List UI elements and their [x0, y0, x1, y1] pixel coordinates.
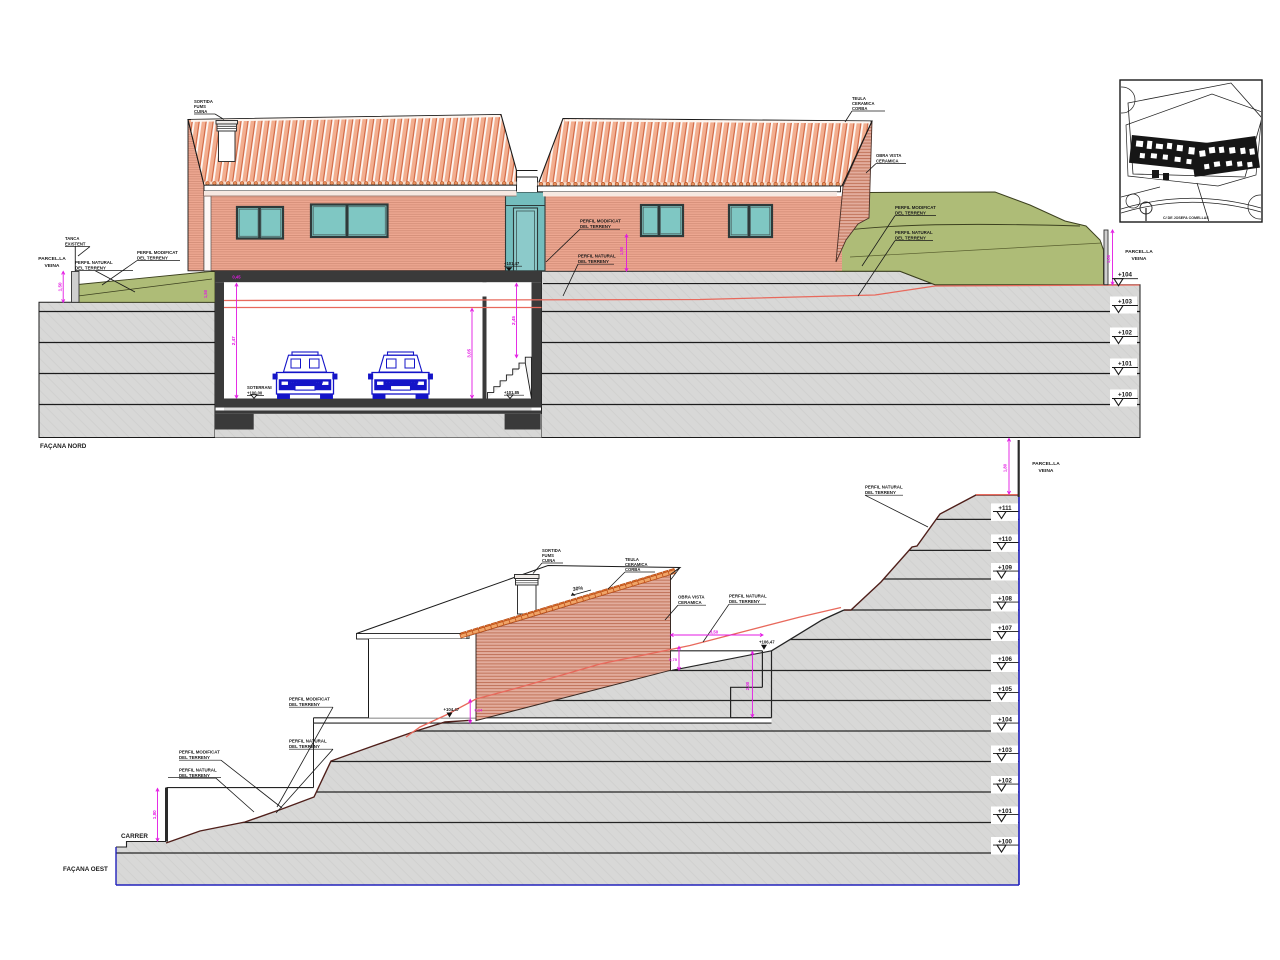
svg-text:+102: +102 [998, 778, 1012, 785]
svg-text:+103: +103 [1118, 299, 1132, 306]
svg-text:DEL TERRENY: DEL TERRENY [75, 266, 106, 271]
svg-text:PARCEL.LA: PARCEL.LA [1032, 461, 1060, 467]
svg-text:DEL TERRENY: DEL TERRENY [289, 744, 320, 749]
svg-text:DEL TERRENY: DEL TERRENY [865, 490, 896, 495]
svg-text:DEL TERRENY: DEL TERRENY [729, 599, 760, 604]
svg-text:+104,47: +104,47 [444, 707, 460, 712]
svg-text:CUINA: CUINA [194, 109, 207, 114]
svg-text:CUINA: CUINA [542, 558, 555, 563]
svg-text:+103: +103 [998, 747, 1012, 754]
svg-text:PERFIL MODIFICAT: PERFIL MODIFICAT [289, 697, 330, 702]
svg-text:VEINA: VEINA [1039, 468, 1054, 474]
svg-text:0,14: 0,14 [475, 708, 484, 713]
svg-text:OBRA VISTA: OBRA VISTA [678, 595, 705, 600]
svg-text:DEL TERRENY: DEL TERRENY [895, 211, 926, 216]
svg-text:PARCEL.LA: PARCEL.LA [1125, 249, 1153, 255]
svg-text:+108: +108 [998, 596, 1012, 603]
svg-text:+106,47: +106,47 [759, 640, 775, 645]
svg-text:EXISTENT: EXISTENT [65, 242, 86, 247]
svg-text:PERFIL MODIFICAT: PERFIL MODIFICAT [179, 750, 220, 755]
svg-text:+101: +101 [998, 808, 1012, 815]
svg-text:PERFIL MODIFICAT: PERFIL MODIFICAT [895, 205, 936, 210]
svg-text:CERAMICA: CERAMICA [876, 159, 899, 164]
svg-text:1,50: 1,50 [58, 282, 63, 291]
svg-text:FAÇANA NORD: FAÇANA NORD [40, 443, 87, 450]
svg-text:1,50: 1,50 [203, 289, 208, 298]
svg-text:1,80: 1,80 [1003, 463, 1008, 472]
svg-text:PERFIL NATURAL: PERFIL NATURAL [578, 254, 616, 259]
svg-text:3,50: 3,50 [710, 630, 719, 635]
svg-text:PARCEL.LA: PARCEL.LA [38, 256, 66, 262]
svg-text:+110: +110 [998, 536, 1012, 543]
svg-text:3,05: 3,05 [467, 348, 472, 357]
svg-text:2,00: 2,00 [745, 681, 750, 690]
svg-text:DEL TERRENY: DEL TERRENY [179, 773, 210, 778]
svg-text:PERFIL MODIFICAT: PERFIL MODIFICAT [137, 250, 178, 255]
svg-text:PERFIL NATURAL: PERFIL NATURAL [895, 230, 933, 235]
svg-text:+104: +104 [1118, 272, 1132, 279]
svg-text:PERFIL NATURAL: PERFIL NATURAL [729, 594, 767, 599]
svg-text:+100: +100 [998, 839, 1012, 846]
svg-text:VEINA: VEINA [1132, 256, 1147, 262]
svg-text:SOTERRANI: SOTERRANI [247, 385, 272, 390]
svg-text:DEL TERRENY: DEL TERRENY [895, 236, 926, 241]
svg-text:DEL TERRENY: DEL TERRENY [179, 755, 210, 760]
svg-text:2,47: 2,47 [231, 336, 236, 345]
svg-text:0,75: 0,75 [669, 657, 678, 662]
svg-text:FAÇANA OEST: FAÇANA OEST [63, 866, 108, 873]
svg-text:PERFIL NATURAL: PERFIL NATURAL [75, 260, 113, 265]
svg-text:+104: +104 [998, 717, 1012, 724]
svg-text:+102: +102 [1118, 330, 1132, 337]
svg-text:0,45: 0,45 [232, 274, 241, 279]
svg-text:+105: +105 [998, 686, 1012, 693]
svg-text:VEINA: VEINA [45, 263, 60, 269]
svg-text:C/ DE JOSEFA COMELLAS: C/ DE JOSEFA COMELLAS [1163, 216, 1209, 220]
svg-text:+109: +109 [998, 565, 1012, 572]
svg-text:CARRER: CARRER [121, 833, 148, 840]
svg-text:1,80: 1,80 [152, 810, 157, 819]
svg-text:TANCA: TANCA [65, 236, 79, 241]
svg-text:PERFIL MODIFICAT: PERFIL MODIFICAT [580, 219, 621, 224]
svg-text:DEL TERRENY: DEL TERRENY [580, 224, 611, 229]
svg-text:CORBA: CORBA [852, 106, 867, 111]
svg-text:DEL TERRENY: DEL TERRENY [137, 256, 168, 261]
svg-text:+101: +101 [1118, 361, 1132, 368]
svg-text:PERFIL NATURAL: PERFIL NATURAL [289, 739, 327, 744]
svg-text:+100: +100 [1118, 392, 1132, 399]
svg-text:1,80: 1,80 [1106, 254, 1111, 263]
svg-text:CERAMICA: CERAMICA [678, 600, 702, 605]
svg-text:+101,47: +101,47 [504, 261, 520, 266]
svg-text:CORBA: CORBA [625, 567, 640, 572]
svg-text:DEL TERRENY: DEL TERRENY [289, 702, 320, 707]
svg-text:PERFIL NATURAL: PERFIL NATURAL [179, 768, 217, 773]
svg-text:OBRA VISTA: OBRA VISTA [876, 153, 901, 158]
svg-text:+106: +106 [998, 656, 1012, 663]
svg-text:+107: +107 [998, 625, 1012, 632]
svg-text:+101,85: +101,85 [504, 390, 520, 395]
svg-text:+111: +111 [998, 505, 1012, 512]
svg-text:PERFIL NATURAL: PERFIL NATURAL [865, 485, 903, 490]
svg-text:DEL TERRENY: DEL TERRENY [578, 259, 609, 264]
svg-text:2,45: 2,45 [511, 316, 516, 325]
svg-text:1,50: 1,50 [619, 246, 624, 255]
